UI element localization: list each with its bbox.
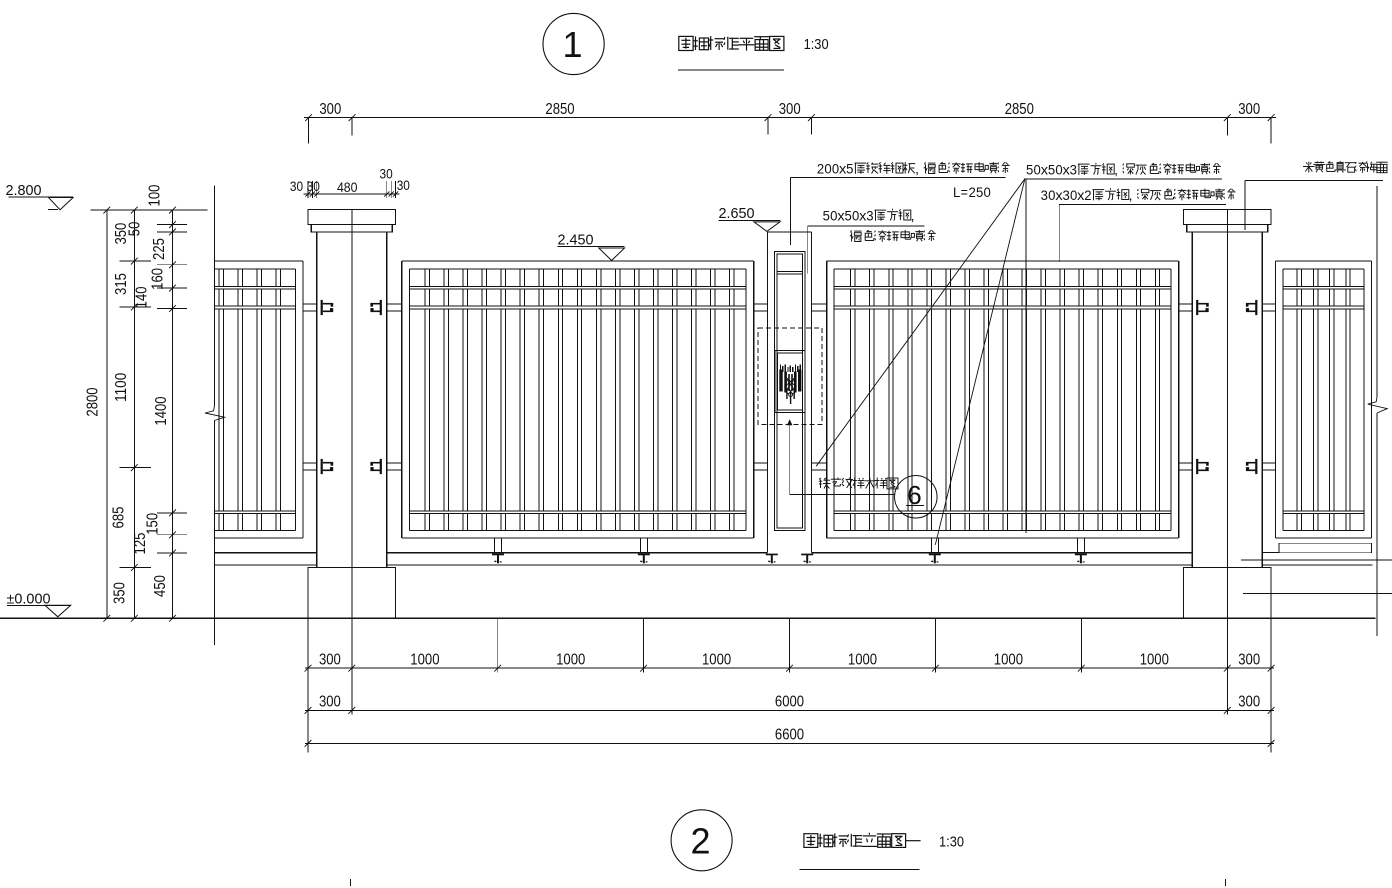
- svg-text:1100: 1100: [113, 373, 130, 402]
- svg-text:5: 5: [844, 208, 852, 224]
- svg-text:1000: 1000: [848, 652, 877, 669]
- svg-text:2.800: 2.800: [6, 182, 42, 199]
- svg-text:1400: 1400: [153, 396, 170, 425]
- svg-text:450: 450: [152, 575, 169, 597]
- svg-text:1: 1: [562, 24, 582, 65]
- svg-text:300: 300: [319, 101, 341, 118]
- svg-text:150: 150: [145, 513, 162, 535]
- svg-text:5: 5: [823, 208, 831, 224]
- svg-text:5: 5: [1048, 162, 1056, 178]
- svg-text:0: 0: [824, 161, 832, 177]
- svg-text:5: 5: [1026, 162, 1034, 178]
- svg-text:3: 3: [1062, 187, 1070, 203]
- svg-text:,: ,: [915, 161, 919, 177]
- svg-text:1000: 1000: [1140, 652, 1169, 669]
- svg-text:2: 2: [1084, 187, 1092, 203]
- svg-text:350: 350: [111, 582, 128, 604]
- svg-text:225: 225: [151, 238, 168, 260]
- svg-text:2850: 2850: [1005, 101, 1034, 118]
- svg-text:1000: 1000: [702, 652, 731, 669]
- svg-text:300: 300: [319, 694, 341, 711]
- svg-text:30: 30: [397, 177, 410, 193]
- svg-text:2850: 2850: [545, 101, 574, 118]
- svg-text:3: 3: [866, 208, 874, 224]
- svg-text:2: 2: [690, 821, 710, 862]
- svg-text:,: ,: [1129, 187, 1133, 203]
- svg-text:0: 0: [984, 184, 992, 200]
- svg-text:5: 5: [976, 184, 984, 200]
- svg-text:=: =: [961, 184, 968, 200]
- svg-text:300: 300: [779, 101, 801, 118]
- svg-text:2: 2: [968, 184, 976, 200]
- svg-text:315: 315: [113, 273, 130, 295]
- svg-text:30: 30: [307, 178, 320, 194]
- svg-text:30: 30: [380, 165, 393, 181]
- svg-text:1000: 1000: [410, 652, 439, 669]
- svg-text:3: 3: [1041, 187, 1049, 203]
- svg-text:,: ,: [911, 208, 915, 224]
- svg-text:100: 100: [147, 184, 164, 206]
- svg-text:50: 50: [127, 221, 144, 236]
- svg-text:30: 30: [290, 178, 303, 194]
- svg-text:160: 160: [149, 268, 166, 290]
- svg-text:300: 300: [319, 652, 341, 669]
- svg-text:,: ,: [1114, 162, 1118, 178]
- svg-text:L: L: [953, 184, 961, 200]
- svg-text:2: 2: [817, 161, 825, 177]
- svg-text:5: 5: [846, 161, 854, 177]
- svg-text:3: 3: [1070, 162, 1078, 178]
- svg-text:300: 300: [1238, 101, 1260, 118]
- svg-text:2.450: 2.450: [558, 232, 594, 249]
- svg-text:1:30: 1:30: [804, 37, 829, 53]
- svg-text:685: 685: [110, 506, 127, 528]
- svg-text:480: 480: [337, 179, 358, 195]
- svg-text:300: 300: [1238, 652, 1260, 669]
- svg-text:300: 300: [1238, 694, 1260, 711]
- svg-text:1000: 1000: [994, 652, 1023, 669]
- svg-text:6000: 6000: [775, 694, 804, 711]
- svg-text:6600: 6600: [775, 727, 804, 744]
- svg-text:125: 125: [132, 532, 149, 554]
- svg-text:1000: 1000: [556, 652, 585, 669]
- svg-text:2.650: 2.650: [719, 205, 755, 222]
- svg-text:140: 140: [134, 286, 151, 308]
- svg-text:1:30: 1:30: [939, 835, 964, 851]
- svg-text:2800: 2800: [85, 387, 102, 416]
